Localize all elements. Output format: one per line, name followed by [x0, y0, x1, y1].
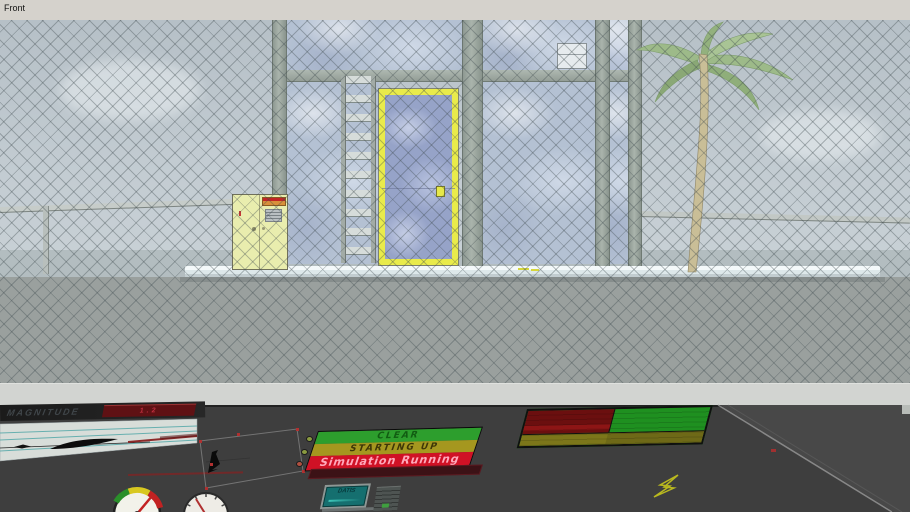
sill-marking — [531, 269, 539, 271]
fence-post — [43, 206, 49, 274]
indicator-light — [301, 449, 308, 455]
ground — [0, 277, 910, 383]
red-marker — [771, 449, 776, 452]
indicator-light — [306, 436, 313, 442]
glass-panel-upper-left[interactable] — [285, 20, 462, 70]
cabinet-label-sticker — [265, 209, 282, 222]
cabinet-handle[interactable] — [262, 227, 265, 230]
cabinet-warning-sticker — [262, 197, 286, 206]
lightning-icon — [650, 473, 690, 501]
magnitude-badge: 1.2 — [102, 404, 196, 418]
viewport[interactable]: Front — [0, 0, 910, 512]
sill-marking — [518, 268, 529, 270]
ladder[interactable] — [346, 76, 371, 263]
facade-column — [595, 20, 610, 270]
datis-display[interactable]: DATIS — [320, 483, 371, 509]
gauge-cluster[interactable] — [100, 486, 250, 512]
yellow-door[interactable] — [379, 89, 458, 265]
cabinet-door-divider — [259, 195, 260, 269]
ladder-rail — [371, 76, 376, 263]
desk-edge — [698, 403, 910, 512]
cabinet-handle[interactable] — [252, 227, 256, 231]
placard-panel — [373, 486, 401, 511]
indicator-light — [296, 461, 303, 467]
facade-beam — [272, 70, 640, 82]
glass-panel-mid[interactable] — [480, 80, 595, 264]
facade-column — [462, 20, 483, 270]
cabinet-red-mark — [239, 211, 241, 216]
status-board[interactable] — [517, 405, 713, 448]
palm-tree[interactable] — [615, 18, 815, 280]
view-name-label: Front — [4, 3, 25, 13]
door-handle[interactable] — [436, 186, 445, 197]
vent-panel — [557, 43, 587, 69]
cloud — [60, 60, 200, 120]
corner-chip — [902, 405, 910, 414]
magnitude-label: MAGNITUDE — [6, 407, 80, 418]
board-text-stripes — [519, 407, 710, 446]
placard-green-mark — [382, 503, 390, 507]
datis-screen: DATIS — [322, 485, 368, 507]
